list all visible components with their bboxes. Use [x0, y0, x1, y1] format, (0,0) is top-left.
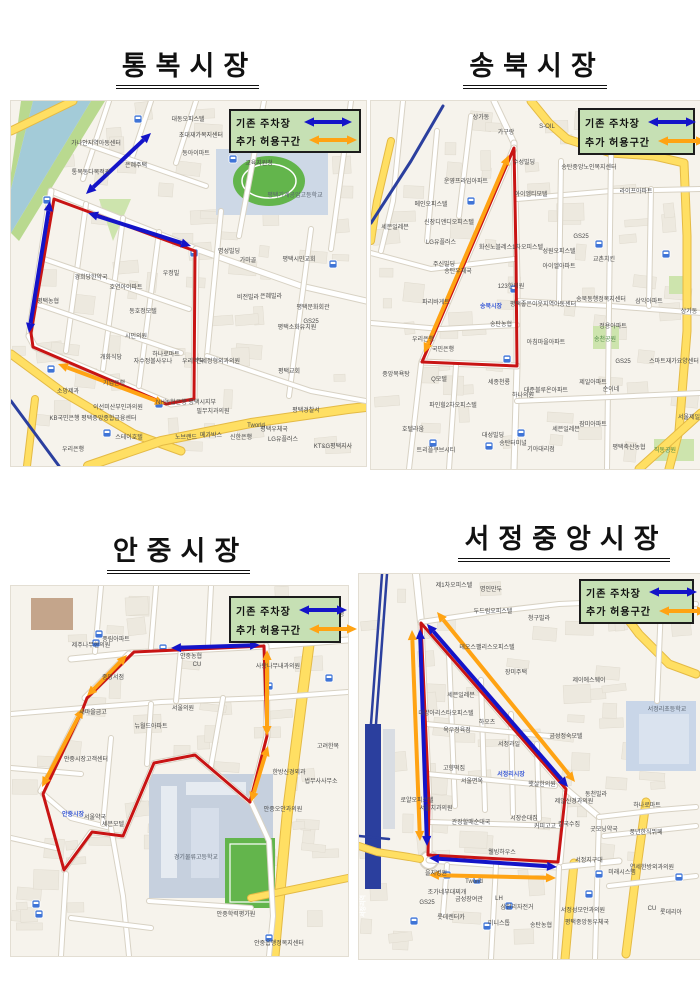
svg-text:서울면옥: 서울면옥	[461, 777, 484, 785]
svg-text:장미주택: 장미주택	[505, 668, 527, 676]
svg-text:호연아이파트: 호연아이파트	[109, 283, 143, 291]
title-wrap: 서정중앙시장	[358, 517, 700, 573]
svg-text:송탄농협: 송탄농협	[490, 320, 512, 328]
svg-text:햇살한의원: 햇살한의원	[528, 780, 556, 788]
svg-text:송탄우체국: 송탄우체국	[444, 267, 472, 275]
svg-text:안중농협: 안중농협	[180, 652, 202, 660]
svg-text:우리약국: 우리약국	[182, 357, 205, 365]
svg-text:뉴월드아파트: 뉴월드아파트	[134, 722, 168, 730]
legend-row-existing: 기존 주차장	[236, 114, 354, 130]
svg-text:미니스톱: 미니스톱	[488, 919, 511, 927]
legend: 기존 주차장 추가 허용구간	[578, 108, 695, 155]
svg-text:은혜빌라: 은혜빌라	[260, 292, 283, 300]
legend-existing-label: 기존 주차장	[236, 115, 291, 130]
svg-text:123한의원: 123한의원	[498, 282, 525, 290]
svg-text:조가네부대찌개: 조가네부대찌개	[428, 888, 467, 896]
svg-text:LG유플러스: LG유플러스	[426, 238, 457, 246]
svg-text:연세한방외과의원: 연세한방외과의원	[630, 863, 674, 871]
svg-text:옥우정육점: 옥우정육점	[443, 727, 471, 734]
title-wrap: 통복시장	[10, 44, 365, 100]
svg-text:서정리초등학교: 서정리초등학교	[648, 705, 687, 713]
svg-text:수성빌딩: 수성빌딩	[513, 158, 535, 166]
svg-text:LH: LH	[495, 896, 503, 902]
svg-text:신한은행: 신한은행	[230, 433, 252, 441]
svg-text:초대재가복지센터: 초대재가복지센터	[179, 131, 223, 139]
svg-text:세븐일레븐: 세븐일레븐	[447, 691, 475, 699]
map-title-songbuk: 송북시장	[463, 44, 606, 89]
legend-existing-label: 기존 주차장	[585, 115, 640, 130]
svg-text:통복동다목적관: 통복동다목적관	[72, 168, 111, 176]
legend-added-label: 추가 허용구간	[236, 622, 301, 637]
svg-text:안중시장고객센터: 안중시장고객센터	[64, 755, 108, 763]
panel-anjung-market: 안중시장 제주나무한의원풍림아파트안중농협CU사랑나무내과의원신한은행CU중앙서…	[10, 529, 347, 957]
map-tongbok: 가나안지역아동센터대동오피스텔초대재가복지센터동아이마트은혜주택통복동다목적관교…	[10, 100, 367, 467]
svg-text:기업은행: 기업은행	[103, 379, 125, 387]
legend-orange-arrow-icon	[656, 135, 700, 147]
svg-text:세븐일레븐: 세븐일레븐	[552, 425, 580, 433]
svg-text:세븐일레븐: 세븐일레븐	[381, 223, 409, 231]
svg-text:라이프아파트: 라이프아파트	[619, 187, 653, 195]
svg-text:국민은행: 국민은행	[432, 345, 454, 353]
map-canvas: 제1차오피스텔명인만두청구빌라두드림오피스텔테오스팰리스오피스텔장미주택제이에스…	[359, 574, 700, 959]
svg-text:명인만두: 명인만두	[480, 585, 503, 593]
legend-row-added: 추가 허용구간	[236, 132, 354, 148]
map-title-anjung: 안중시장	[107, 529, 250, 574]
legend-row-added: 추가 허용구간	[585, 133, 688, 149]
svg-text:자수정볼사우나: 자수정볼사우나	[134, 357, 173, 365]
legend-existing-label: 기존 주차장	[586, 585, 641, 600]
svg-text:평택경찰서: 평택경찰서	[292, 406, 320, 414]
svg-text:송북시장: 송북시장	[480, 302, 503, 310]
svg-text:커피고고: 커피고고	[534, 822, 557, 830]
map-seojeong: 제1차오피스텔명인만두청구빌라두드림오피스텔테오스팰리스오피스텔장미주택제이에스…	[358, 573, 700, 960]
svg-text:송북동행정복지센터: 송북동행정복지센터	[576, 295, 626, 303]
svg-text:하나로마트: 하나로마트	[152, 350, 180, 358]
svg-text:하오츠: 하오츠	[479, 718, 496, 726]
svg-text:서정성모안과의원: 서정성모안과의원	[561, 906, 605, 914]
svg-text:안중읍행정복지센터: 안중읍행정복지센터	[254, 939, 304, 947]
svg-text:평택문화회관: 평택문화회관	[296, 303, 330, 311]
svg-text:서울약국: 서울약국	[84, 813, 107, 821]
svg-text:청구빌라: 청구빌라	[528, 614, 551, 622]
svg-text:화신노블레스1차오피스텔: 화신노블레스1차오피스텔	[479, 243, 544, 251]
legend-blue-arrow-icon	[646, 116, 698, 128]
svg-text:스마트재가요양센터: 스마트재가요양센터	[649, 357, 699, 365]
svg-text:평택우체국: 평택우체국	[260, 425, 288, 433]
svg-text:시민의원: 시민의원	[125, 332, 147, 340]
legend-blue-arrow-icon	[297, 604, 349, 616]
svg-text:경기물류고등학교: 경기물류고등학교	[174, 853, 219, 861]
svg-text:LG유플러스: LG유플러스	[268, 435, 299, 443]
map-songbuk: 상가동가구랑S-OIL송탄중앙노인복지센터라이프아파트수성빌딩운영프라임아파트아…	[370, 100, 700, 470]
svg-text:고향떡집: 고향떡집	[443, 764, 465, 772]
map-title-seojeong: 서정중앙시장	[458, 517, 669, 562]
svg-text:서울의원: 서울의원	[172, 704, 194, 712]
panel-songbuk-market: 송북시장 상가동가구랑S-OIL송탄중앙노인복지센터라이프아파트수성빌딩운영프라…	[370, 44, 700, 470]
svg-text:직동공원: 직동공원	[654, 446, 676, 454]
svg-text:서정지구대: 서정지구대	[575, 856, 603, 864]
svg-text:서울치과의원: 서울치과의원	[419, 804, 452, 812]
legend-blue-arrow-icon	[647, 586, 699, 598]
svg-text:세븐모텔: 세븐모텔	[102, 820, 125, 828]
legend-row-existing: 기존 주차장	[236, 602, 334, 618]
svg-text:운영프라임아파트: 운영프라임아파트	[444, 177, 489, 185]
svg-text:GS25: GS25	[573, 234, 589, 240]
document-page: 통복시장 가나안지역아동센터대동오피스텔초대재가복지센터동아이마트은혜주택통복동…	[0, 0, 700, 990]
legend-row-added: 추가 허용구간	[236, 621, 334, 637]
svg-text:우정빌: 우정빌	[163, 269, 180, 277]
svg-text:호텔라움: 호텔라움	[402, 425, 425, 433]
svg-text:두드림오피스텔: 두드림오피스텔	[474, 607, 513, 615]
svg-text:평택좋은이웃지역아동센터: 평택좋은이웃지역아동센터	[510, 300, 576, 308]
svg-text:안중오안과의원: 안중오안과의원	[264, 805, 303, 813]
svg-text:제일신경과의원: 제일신경과의원	[555, 797, 594, 805]
legend-added-label: 추가 허용구간	[586, 603, 651, 618]
svg-text:웰빙하우스: 웰빙하우스	[488, 848, 516, 856]
svg-text:을지병원: 을지병원	[425, 869, 447, 877]
svg-text:제1차오피스텔: 제1차오피스텔	[436, 581, 473, 589]
svg-text:순이네: 순이네	[603, 385, 620, 393]
svg-text:세종천룡: 세종천룡	[488, 378, 511, 386]
svg-text:평택기계공업고등학교: 평택기계공업고등학교	[267, 191, 323, 199]
svg-text:명성빌딩: 명성빌딩	[218, 247, 240, 255]
svg-text:고려한복: 고려한복	[317, 742, 340, 750]
svg-text:비전빌라: 비전빌라	[237, 293, 260, 301]
svg-text:잠미아파트: 잠미아파트	[579, 420, 607, 428]
legend-orange-arrow-icon	[307, 623, 359, 635]
panel-seojeong-jungang-market: 서정중앙시장 제1차오피스텔명인만두청구빌라두드림오피스텔테오스팰리스오피스텔장…	[358, 517, 700, 960]
svg-text:시장순대집: 시장순대집	[510, 814, 538, 822]
legend-row-existing: 기존 주차장	[586, 584, 687, 600]
svg-text:개화식당: 개화식당	[100, 353, 123, 361]
svg-text:새마을금고: 새마을금고	[79, 708, 107, 716]
svg-text:신장디앤디오피스텔: 신장디앤디오피스텔	[424, 218, 474, 226]
svg-text:평택축산농협: 평택축산농협	[612, 443, 645, 451]
svg-text:필무치과의원: 필무치과의원	[196, 407, 229, 415]
svg-text:평택중앙동우체국: 평택중앙동우체국	[565, 918, 610, 926]
svg-text:성원오피스텔: 성원오피스텔	[542, 247, 576, 255]
map-title-tongbok: 통복시장	[116, 44, 259, 89]
map-canvas: 가나안지역아동센터대동오피스텔초대재가복지센터동아이마트은혜주택통복동다목적관교…	[11, 101, 366, 466]
svg-text:KB국민은행 평택중앙종합금융센터: KB국민은행 평택중앙종합금융센터	[50, 414, 137, 422]
svg-text:KT&G평택지사: KT&G평택지사	[314, 442, 353, 450]
svg-text:파리바게트: 파리바게트	[422, 298, 450, 306]
svg-text:경희당한약국: 경희당한약국	[74, 273, 108, 281]
svg-text:서정리역: 서정리역	[359, 895, 367, 917]
svg-text:CU: CU	[648, 906, 657, 912]
svg-text:가나안지역아동센터: 가나안지역아동센터	[71, 139, 121, 147]
svg-text:롯데렌터카: 롯데렌터카	[437, 913, 465, 921]
svg-text:테오스팰리스오피스텔: 테오스팰리스오피스텔	[459, 643, 515, 651]
svg-text:NH농협은행 평택시지부: NH농협은행 평택시지부	[156, 398, 216, 406]
svg-text:중앙목욕탕: 중앙목욕탕	[382, 370, 410, 378]
svg-text:우리은행: 우리은행	[412, 335, 434, 343]
svg-text:중앙서점: 중앙서점	[102, 673, 124, 681]
svg-text:대양아리스타오피스텔: 대양아리스타오피스텔	[418, 709, 474, 717]
svg-text:서정과일: 서정과일	[498, 740, 520, 748]
svg-text:롯데리아: 롯데리아	[660, 908, 683, 916]
svg-text:삼천리자전거: 삼천리자전거	[500, 903, 533, 911]
svg-text:대동오피스텔: 대동오피스텔	[171, 115, 205, 123]
svg-text:트리플쿠브시티: 트리플쿠브시티	[417, 446, 456, 454]
svg-text:서울제일: 서울제일	[678, 413, 700, 421]
svg-text:교촌치킨: 교촌치킨	[593, 255, 615, 263]
svg-text:동호정모텔: 동호정모텔	[129, 307, 157, 315]
title-wrap: 안중시장	[10, 529, 347, 585]
svg-text:아이엘아파트: 아이엘아파트	[542, 262, 576, 270]
svg-text:풍년한식뷔페: 풍년한식뷔페	[629, 828, 662, 836]
panel-tongbok-market: 통복시장 가나안지역아동센터대동오피스텔초대재가복지센터동아이마트은혜주택통복동…	[10, 44, 365, 467]
svg-text:아침마을아파트: 아침마을아파트	[527, 338, 566, 346]
map-anjung: 제주나무한의원풍림아파트안중농협CU사랑나무내과의원신한은행CU중앙서점새마을금…	[10, 585, 349, 957]
svg-text:금성정숙모텔: 금성정숙모텔	[549, 732, 583, 740]
svg-text:안중학력평가원: 안중학력평가원	[217, 910, 256, 918]
svg-text:가마골: 가마골	[240, 256, 257, 264]
svg-text:대성빌딩: 대성빌딩	[482, 431, 504, 439]
legend: 기존 주차장 추가 허용구간	[579, 579, 694, 624]
svg-text:상가동: 상가동	[681, 307, 698, 315]
svg-text:GS25: GS25	[419, 900, 435, 906]
svg-text:관장할매순대국: 관장할매순대국	[452, 818, 491, 826]
legend-orange-arrow-icon	[307, 134, 359, 146]
svg-text:Q모텔: Q모텔	[431, 375, 447, 383]
svg-text:주신빌딩: 주신빌딩	[433, 260, 455, 268]
svg-text:동아이마트: 동아이마트	[182, 149, 210, 157]
svg-text:제일아파트: 제일아파트	[579, 378, 607, 386]
svg-text:송탄터미널: 송탄터미널	[499, 439, 527, 447]
svg-text:동천빌라: 동천빌라	[585, 790, 608, 798]
svg-text:서정리시장: 서정리시장	[497, 770, 525, 778]
svg-text:스테이호텔: 스테이호텔	[115, 433, 143, 441]
svg-text:가구랑: 가구랑	[498, 128, 515, 136]
svg-text:법무사사무소: 법무사사무소	[304, 777, 338, 785]
svg-text:교육지원청: 교육지원청	[245, 159, 273, 167]
svg-text:금성장여관: 금성장여관	[455, 895, 483, 903]
svg-text:송탄중앙노인복지센터: 송탄중앙노인복지센터	[561, 163, 616, 171]
svg-text:칼국수집: 칼국수집	[558, 820, 580, 828]
svg-text:파인힐2차오피스텔: 파인힐2차오피스텔	[429, 401, 477, 409]
svg-text:평택시민교회: 평택시민교회	[282, 255, 315, 263]
svg-text:하나로마트: 하나로마트	[633, 801, 661, 809]
svg-text:평택농협: 평택농협	[37, 297, 59, 305]
legend-blue-arrow-icon	[302, 116, 354, 128]
svg-text:송천공원: 송천공원	[594, 335, 616, 343]
svg-text:삼익아파트: 삼익아파트	[635, 297, 663, 305]
svg-text:사랑나무내과의원: 사랑나무내과의원	[256, 662, 300, 670]
svg-text:노브랜드: 노브랜드	[175, 433, 198, 441]
svg-text:평택교회: 평택교회	[278, 367, 300, 375]
svg-text:안중시장: 안중시장	[62, 810, 85, 818]
legend-row-added: 추가 허용구간	[586, 603, 687, 619]
title-wrap: 송북시장	[370, 44, 700, 100]
legend: 기존 주차장 추가 허용구간	[229, 596, 341, 643]
svg-text:CU: CU	[193, 662, 202, 668]
svg-text:우리은행: 우리은행	[62, 445, 84, 453]
svg-text:송탄농협: 송탄농협	[530, 921, 552, 929]
svg-text:아이엠티모텔: 아이엠티모텔	[514, 190, 548, 198]
legend: 기존 주차장 추가 허용구간	[229, 109, 361, 153]
svg-text:소망제과: 소망제과	[57, 387, 80, 395]
svg-text:기아대리점: 기아대리점	[527, 445, 555, 453]
svg-text:상가동: 상가동	[473, 113, 490, 121]
svg-text:굿모닝약국: 굿모닝약국	[590, 825, 618, 833]
legend-added-label: 추가 허용구간	[236, 133, 301, 148]
svg-text:메인오피스텔: 메인오피스텔	[414, 200, 448, 208]
svg-text:GS25: GS25	[615, 359, 631, 365]
svg-text:로얄오피스텔: 로얄오피스텔	[400, 796, 434, 804]
svg-text:풍림아파트: 풍림아파트	[102, 635, 130, 643]
svg-text:은혜주택: 은혜주택	[125, 161, 147, 169]
svg-text:정용아파트: 정용아파트	[599, 322, 627, 330]
legend-added-label: 추가 허용구간	[585, 134, 650, 149]
svg-text:이선미산부인과의원: 이선미산부인과의원	[93, 403, 143, 411]
legend-orange-arrow-icon	[657, 605, 700, 617]
svg-text:제이에스웨이: 제이에스웨이	[572, 676, 605, 684]
svg-text:메가박스: 메가박스	[200, 431, 223, 439]
map-canvas: 상가동가구랑S-OIL송탄중앙노인복지센터라이프아파트수성빌딩운영프라임아파트아…	[371, 101, 700, 469]
legend-existing-label: 기존 주차장	[236, 603, 291, 618]
svg-text:평택소화유치원: 평택소화유치원	[278, 323, 317, 331]
svg-text:한방신경외과: 한방신경외과	[272, 768, 306, 776]
svg-text:하나의원: 하나의원	[512, 391, 534, 399]
svg-text:Tworld: Tworld	[465, 879, 483, 885]
svg-text:S-OIL: S-OIL	[539, 124, 555, 130]
legend-row-existing: 기존 주차장	[585, 114, 688, 130]
